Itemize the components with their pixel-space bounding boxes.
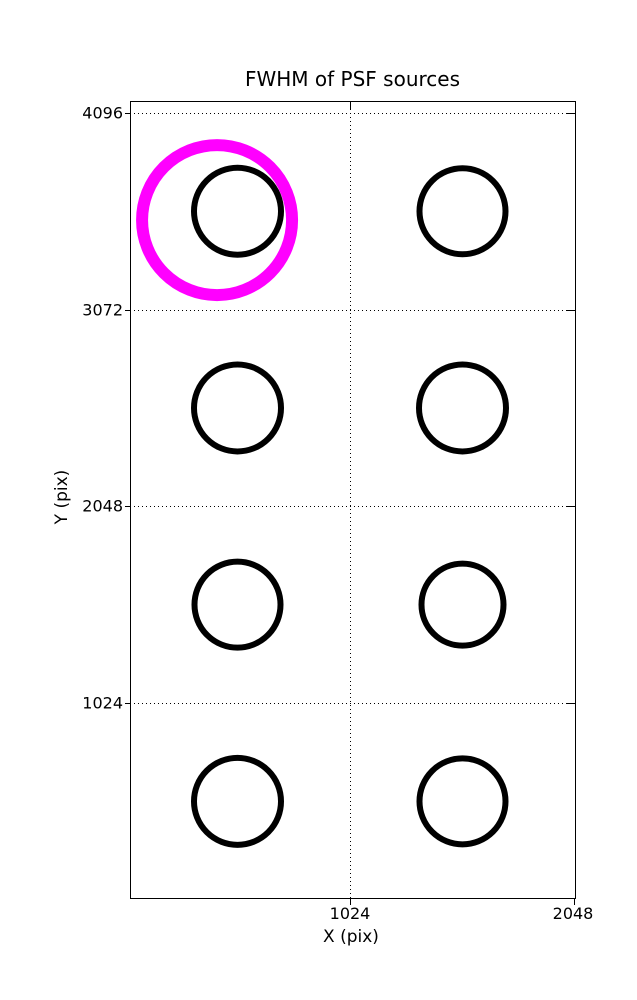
psf-source-marker xyxy=(194,364,281,451)
y-tick-label: 2048 xyxy=(82,497,123,516)
figure: FWHM of PSF sources X (pix) Y (pix) 1024… xyxy=(0,0,637,1000)
psf-source-marker xyxy=(420,758,506,844)
chart-title: FWHM of PSF sources xyxy=(245,67,460,91)
y-tick-label: 3072 xyxy=(82,300,123,319)
y-tick-label: 4096 xyxy=(82,103,123,122)
y-axis-label: Y (pix) xyxy=(52,470,72,525)
psf-source-marker xyxy=(194,168,281,255)
psf-source-marker xyxy=(420,168,506,254)
x-tick-label: 2048 xyxy=(553,904,594,923)
psf-source-marker xyxy=(422,564,504,646)
x-tick-label: 1024 xyxy=(330,904,371,923)
x-axis-label: X (pix) xyxy=(323,927,379,947)
highlight-circle xyxy=(142,145,292,295)
psf-source-marker xyxy=(419,364,506,451)
psf-source-marker xyxy=(195,562,281,648)
psf-source-marker xyxy=(194,758,281,845)
y-tick-label: 1024 xyxy=(82,694,123,713)
